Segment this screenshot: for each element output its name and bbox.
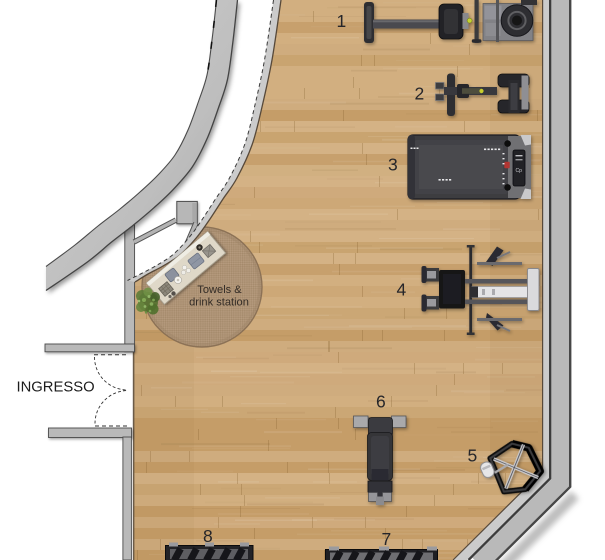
svg-text:Cp: Cp	[516, 168, 523, 174]
svg-text:7: 7	[382, 529, 392, 549]
svg-text:8: 8	[203, 526, 213, 546]
svg-text:INGRESSO: INGRESSO	[17, 380, 95, 396]
svg-text:drink station: drink station	[189, 297, 249, 309]
svg-text:1: 1	[337, 11, 347, 31]
svg-text:5: 5	[468, 446, 478, 466]
svg-text:6: 6	[376, 392, 386, 412]
svg-text:4: 4	[397, 280, 407, 300]
svg-text:Towels &: Towels &	[197, 284, 242, 296]
svg-text:3: 3	[388, 155, 398, 175]
svg-text:2: 2	[415, 84, 425, 104]
